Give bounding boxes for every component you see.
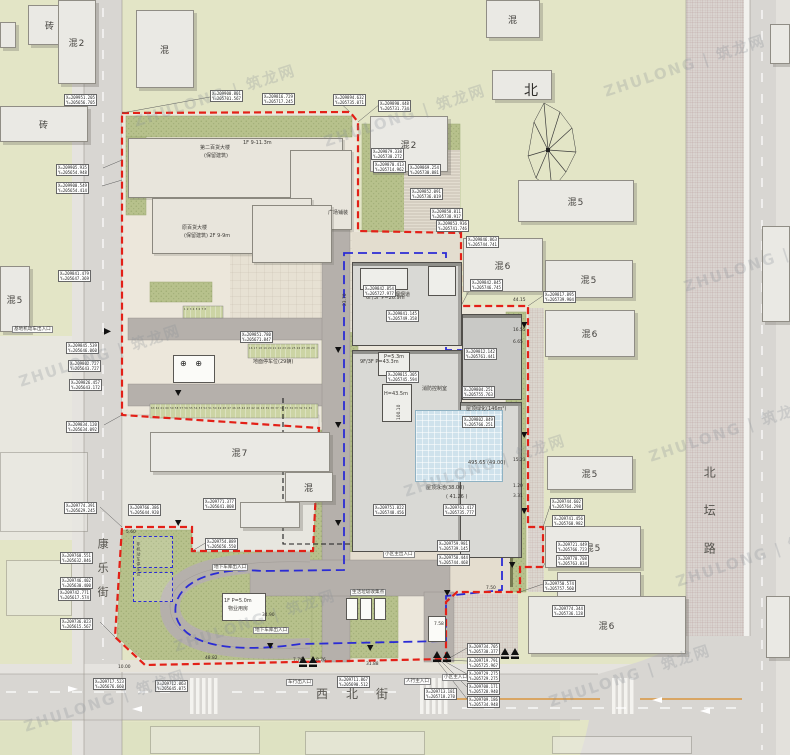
coord-label: X=209759.981 Y=205739.145 bbox=[437, 540, 470, 552]
coord-y: Y=205718.270 bbox=[426, 694, 455, 699]
coord-label: X=209900.549 Y=205654.414 bbox=[56, 182, 89, 194]
coord-label: X=209742.771 Y=205617.574 bbox=[58, 589, 91, 601]
coord-y: Y=205748.456 bbox=[375, 510, 404, 515]
coord-y: Y=205727.977 bbox=[365, 291, 394, 296]
map-text: P=5.3m bbox=[384, 355, 404, 361]
map-text: 小区主出入口 bbox=[383, 551, 415, 558]
coord-y: Y=205739.904 bbox=[545, 297, 574, 302]
map-text: 屋顶绿化(146m²) bbox=[466, 407, 506, 413]
coord-label: X=209869.254 Y=205730.881 bbox=[408, 164, 441, 176]
coord-y: Y=205763.834 bbox=[558, 561, 587, 566]
map-text: 地下车库出入口 bbox=[253, 627, 289, 634]
coord-y: Y=205766.251 bbox=[464, 422, 493, 427]
coord-y: Y=205634.092 bbox=[68, 427, 97, 432]
coord-label: X=209708.171 Y=205728.940 bbox=[467, 683, 500, 695]
coord-label: X=209761.417 Y=205735.777 bbox=[443, 504, 476, 516]
coord-label: X=209758.444 Y=205744.468 bbox=[437, 554, 470, 566]
building-label: 混 bbox=[508, 13, 518, 26]
coord-label: X=209879.338 Y=205730.272 bbox=[371, 148, 404, 160]
coord-y: Y=205725.967 bbox=[469, 663, 498, 668]
coord-y: Y=205744.741 bbox=[468, 242, 497, 247]
map-text: 物业用房 bbox=[228, 607, 248, 613]
coord-y: Y=205641.008 bbox=[205, 504, 234, 509]
coord-y: Y=205617.574 bbox=[60, 595, 89, 600]
coord-y: Y=205729.275 bbox=[469, 676, 498, 681]
map-text: 北坛路 bbox=[702, 466, 715, 580]
building-label: 混6 bbox=[599, 619, 616, 632]
map-text: (保留建筑) bbox=[204, 154, 228, 160]
coord-y: Y=205736.019 bbox=[412, 194, 441, 199]
building: 混 bbox=[285, 472, 333, 502]
coord-y: Y=205643.172 bbox=[71, 385, 100, 390]
building-label: 混6 bbox=[582, 327, 599, 340]
coord-label: X=209736.023 Y=205615.567 bbox=[60, 618, 93, 630]
building-label: 混6 bbox=[495, 259, 512, 272]
coord-label: X=209712.063 Y=205645.075 bbox=[155, 680, 188, 692]
coord-label: X=209853.936 Y=205741.746 bbox=[436, 220, 469, 232]
map-text: ⊕ ⊕ bbox=[180, 360, 205, 369]
coord-y: Y=205656.550 bbox=[207, 544, 236, 549]
map-text: 车行出入口 bbox=[286, 679, 313, 686]
map-text: 7.58 bbox=[434, 623, 444, 628]
map-text: 1F P=5.0m bbox=[224, 599, 252, 605]
building: 混6 bbox=[545, 310, 635, 357]
coord-y: Y=205730.881 bbox=[410, 170, 439, 175]
map-text: 16.55 bbox=[513, 329, 526, 334]
map-text: 23.70 bbox=[344, 293, 349, 306]
map-text: 8.76 bbox=[316, 659, 326, 664]
building-label: 混7 bbox=[232, 446, 249, 459]
building: 混 bbox=[136, 10, 194, 88]
coord-label: X=209900.801 Y=205701.567 bbox=[210, 90, 243, 102]
coord-label: X=209774.391 Y=205629.245 bbox=[64, 502, 97, 514]
coord-label: X=209754.889 Y=205656.550 bbox=[205, 538, 238, 550]
coord-y: Y=205739.145 bbox=[439, 546, 468, 551]
coord-y: Y=205728.940 bbox=[469, 689, 498, 694]
coord-label: X=209751.822 Y=205748.456 bbox=[373, 504, 406, 516]
coord-y: Y=205730.272 bbox=[373, 154, 402, 159]
coord-y: Y=205643.727 bbox=[70, 366, 99, 371]
map-text: 48.82 bbox=[205, 657, 218, 662]
coord-label: X=209771.377 Y=205641.008 bbox=[203, 498, 236, 510]
map-text: 1 2 3 4 5 6 7 8 bbox=[184, 308, 206, 311]
map-text: 3.31 bbox=[513, 495, 523, 500]
map-text: 非机动车停车位 bbox=[136, 542, 140, 577]
coord-y: Y=205731.734 bbox=[380, 106, 409, 111]
coord-label: X=209812.142 Y=205761.441 bbox=[464, 348, 497, 360]
map-text: 7.50 bbox=[486, 587, 496, 592]
coord-y: Y=205744.468 bbox=[439, 560, 468, 565]
coord-y: Y=205717.245 bbox=[264, 99, 293, 104]
map-text: 消防控制室 bbox=[422, 387, 447, 393]
coord-label: X=209951.205 Y=205656.705 bbox=[64, 94, 97, 106]
map-text: 1.20 bbox=[513, 485, 523, 490]
map-text: 北 bbox=[524, 84, 538, 99]
coord-label: X=209870.413 Y=205714.962 bbox=[373, 161, 406, 173]
building bbox=[762, 226, 790, 322]
coord-label: X=209834.120 Y=205634.092 bbox=[66, 421, 99, 433]
building bbox=[770, 24, 790, 64]
coord-label: X=209894.632 Y=205735.071 bbox=[333, 94, 366, 106]
coord-label: X=209852.091 Y=205736.019 bbox=[410, 188, 443, 200]
building bbox=[252, 205, 332, 263]
coord-y: Y=205745.594 bbox=[388, 377, 417, 382]
building-label: 混5 bbox=[7, 293, 24, 306]
building-label: 混 bbox=[304, 481, 314, 494]
coord-label: X=209826.457 Y=205643.172 bbox=[69, 379, 102, 391]
coord-label: X=209817.895 Y=205739.904 bbox=[543, 291, 576, 303]
coord-y: Y=205755.763 bbox=[464, 392, 493, 397]
map-text: 9F/3F P=43.3m bbox=[360, 360, 399, 366]
map-text: 16 17 18 19 20 21 22 23 24 25 26 27 28 2… bbox=[249, 347, 315, 350]
building: 混 bbox=[486, 0, 540, 38]
map-text: 5.60 bbox=[126, 531, 136, 536]
building bbox=[150, 726, 260, 754]
building: 混7 bbox=[150, 432, 330, 472]
coord-y: Y=205615.567 bbox=[62, 624, 91, 629]
map-text: 63 62 61 60 59 58 57 56 55 54 53 52 51 5… bbox=[151, 407, 312, 410]
coord-label: X=209774.344 Y=205736.128 bbox=[552, 605, 585, 617]
map-text: 屋顶泳池(38.00) bbox=[426, 486, 464, 492]
coord-label: X=209816.729 Y=205717.245 bbox=[262, 93, 295, 105]
map-text: 100.10 bbox=[398, 405, 403, 420]
building: 混2 bbox=[58, 0, 96, 84]
coord-y: Y=205647.369 bbox=[60, 276, 89, 281]
coord-label: X=209711.867 Y=205690.512 bbox=[337, 676, 370, 688]
map-text: 31.88 bbox=[366, 663, 379, 668]
coord-label: X=209734.705 Y=205730.377 bbox=[467, 643, 500, 655]
coord-label: X=209841.145 Y=205749.358 bbox=[386, 310, 419, 322]
building-label: 混5 bbox=[582, 467, 599, 480]
coord-label: X=209890.448 Y=205731.734 bbox=[378, 100, 411, 112]
map-text: (保留建筑) 2F 9-9m bbox=[184, 234, 230, 240]
building-label: 混 bbox=[160, 43, 170, 56]
coord-y: Y=205766.723 bbox=[558, 547, 587, 552]
coord-y: Y=205768.982 bbox=[554, 521, 583, 526]
coord-label: X=209766.386 Y=205644.920 bbox=[128, 504, 161, 516]
coord-y: Y=205632.846 bbox=[62, 558, 91, 563]
coord-y: Y=205736.128 bbox=[554, 611, 583, 616]
building-label: 混5 bbox=[581, 273, 598, 286]
coord-y: Y=205757.560 bbox=[545, 586, 574, 591]
building-label: 砖 bbox=[45, 19, 55, 32]
building-label: 混2 bbox=[69, 36, 86, 49]
coord-label: X=209729.275 Y=205729.275 bbox=[467, 670, 500, 682]
coord-label: X=209778.708 Y=205763.834 bbox=[556, 555, 589, 567]
coord-label: X=209858.811 Y=205738.917 bbox=[430, 208, 463, 220]
coord-label: X=209713.181 Y=205718.270 bbox=[424, 688, 457, 700]
coord-y: Y=205656.705 bbox=[66, 100, 95, 105]
coord-label: X=209842.845 Y=205746.745 bbox=[470, 279, 503, 291]
coord-label: X=209768.551 Y=205632.846 bbox=[60, 552, 93, 564]
building bbox=[428, 616, 446, 642]
building: 混5 bbox=[518, 180, 634, 222]
coord-label: X=209709.186 Y=205734.948 bbox=[467, 696, 500, 708]
map-text: 1F 9-11.3m bbox=[243, 141, 272, 147]
coord-y: Y=205746.745 bbox=[472, 285, 501, 290]
building bbox=[346, 598, 358, 620]
coord-label: X=209741.456 Y=205768.982 bbox=[552, 515, 585, 527]
coord-label: X=209744.602 Y=205764.298 bbox=[550, 498, 583, 510]
building bbox=[360, 598, 372, 620]
coord-y: Y=205646.060 bbox=[68, 348, 97, 353]
coord-label: X=209815.305 Y=205745.594 bbox=[386, 371, 419, 383]
coord-y: Y=205764.298 bbox=[552, 504, 581, 509]
building-label: 混5 bbox=[568, 195, 585, 208]
coord-y: Y=205671.847 bbox=[242, 337, 271, 342]
map-text: ( 41.26 ) bbox=[446, 495, 467, 501]
coord-y: Y=205630.400 bbox=[62, 583, 91, 588]
map-text: 西北街 bbox=[316, 688, 406, 701]
coord-label: X=209804.251 Y=205755.763 bbox=[462, 386, 495, 398]
coord-y: Y=205654.414 bbox=[58, 188, 87, 193]
building bbox=[240, 502, 300, 528]
map-text: 第二百货大楼 bbox=[200, 146, 230, 152]
coord-label: X=209802.849 Y=205766.251 bbox=[462, 416, 495, 428]
map-text: H=43.5m bbox=[384, 392, 408, 398]
coord-label: X=209802.727 Y=205643.727 bbox=[68, 360, 101, 372]
coord-y: Y=205644.920 bbox=[130, 510, 159, 515]
coord-y: Y=205654.948 bbox=[58, 170, 87, 175]
coord-y: Y=205761.441 bbox=[466, 354, 495, 359]
map-text: 小区主入口 bbox=[442, 674, 469, 681]
coord-label: X=209717.523 Y=205676.660 bbox=[93, 678, 126, 690]
map-text: 10.00 bbox=[118, 666, 131, 671]
building: 混5 bbox=[547, 456, 633, 490]
building bbox=[766, 596, 790, 658]
map-text: 15.23 bbox=[513, 459, 526, 464]
map-text: 6.65 bbox=[513, 341, 523, 346]
coord-y: Y=205690.512 bbox=[339, 682, 368, 687]
coord-y: Y=205734.948 bbox=[469, 702, 498, 707]
coord-y: Y=205730.377 bbox=[469, 649, 498, 654]
map-text: 44.15 bbox=[513, 299, 526, 304]
map-text: 广场铺装 bbox=[328, 211, 348, 217]
coord-label: X=209842.854 Y=205727.977 bbox=[363, 285, 396, 297]
coord-label: X=209719.791 Y=205725.967 bbox=[467, 657, 500, 669]
coord-y: Y=205629.245 bbox=[66, 508, 95, 513]
coord-y: Y=205735.071 bbox=[335, 100, 364, 105]
map-text: 康乐街 bbox=[96, 538, 108, 610]
map-text: 地下车库出入口 bbox=[212, 564, 248, 571]
coord-y: Y=205749.358 bbox=[388, 316, 417, 321]
building bbox=[428, 266, 456, 296]
coord-label: X=209851.780 Y=205671.847 bbox=[240, 331, 273, 343]
coord-y: Y=205741.746 bbox=[438, 226, 467, 231]
building bbox=[492, 70, 552, 100]
building bbox=[0, 452, 88, 532]
coord-label: X=209841.479 Y=205647.369 bbox=[58, 270, 91, 282]
coord-y: Y=205735.777 bbox=[445, 510, 474, 515]
building bbox=[0, 22, 16, 48]
coord-label: X=209746.402 Y=205630.400 bbox=[60, 577, 93, 589]
site-plan-canvas: 砖混2混砖混5混混2混5混6混5混6混5混5混6混7混 康乐街西北街北坛路北第二… bbox=[0, 0, 790, 755]
map-text: 7.70 bbox=[293, 659, 303, 664]
building-label: 砖 bbox=[39, 118, 49, 131]
map-text: 地面停车位(29辆) bbox=[253, 360, 293, 366]
coord-y: Y=205676.660 bbox=[95, 684, 124, 689]
building bbox=[552, 736, 692, 754]
coord-y: Y=205714.962 bbox=[375, 167, 404, 172]
coord-y: Y=205701.567 bbox=[212, 96, 241, 101]
building: 砖 bbox=[0, 106, 88, 142]
map-text: 34.90 bbox=[262, 614, 275, 619]
coord-label: X=209905.935 Y=205654.948 bbox=[56, 164, 89, 176]
map-text: 生活垃圾收集点 bbox=[350, 589, 386, 596]
coord-label: X=209846.863 Y=205744.741 bbox=[466, 236, 499, 248]
map-text: 原百货大楼 bbox=[182, 226, 207, 232]
map-text: 基地机动车出入口 bbox=[12, 326, 53, 333]
coord-label: X=209750.574 Y=205757.560 bbox=[543, 580, 576, 592]
building: 混5 bbox=[0, 266, 30, 332]
coord-label: X=209845.539 Y=205646.060 bbox=[66, 342, 99, 354]
building bbox=[305, 731, 425, 755]
map-text: 人行主入口 bbox=[404, 678, 431, 685]
coord-label: X=209721.449 Y=205766.723 bbox=[556, 541, 589, 553]
coord-y: Y=205738.917 bbox=[432, 214, 461, 219]
coord-y: Y=205645.075 bbox=[157, 686, 186, 691]
map-text: 495.65 (49.00) bbox=[468, 461, 505, 467]
building bbox=[374, 598, 386, 620]
